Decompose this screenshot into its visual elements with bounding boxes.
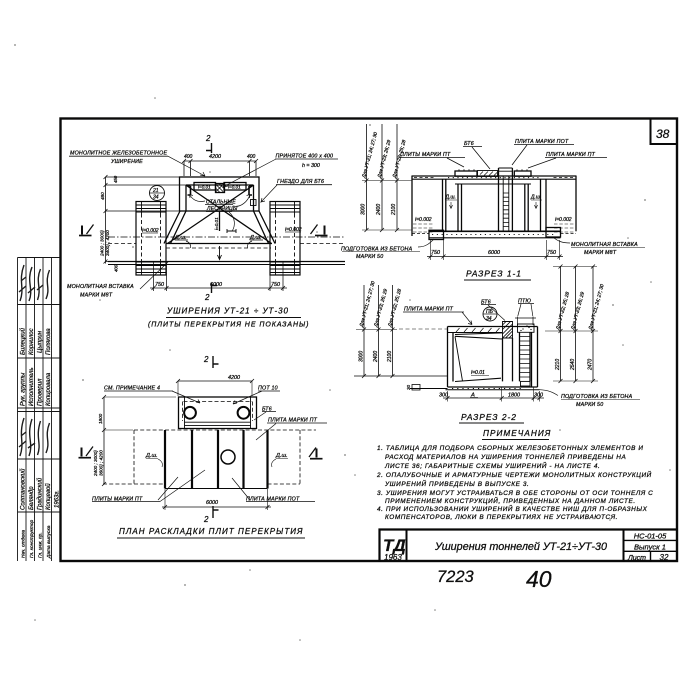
- svg-text:НС-01-05: НС-01-05: [634, 532, 667, 541]
- svg-text:ПРИМЕЧАНИЯ: ПРИМЕЧАНИЯ: [483, 429, 551, 438]
- svg-text:750: 750: [271, 282, 280, 288]
- svg-text:3600) ; 4200: 3600) ; 4200: [99, 450, 104, 476]
- svg-text:МАРКИ М8Т: МАРКИ М8Т: [80, 293, 113, 299]
- svg-text:750: 750: [547, 250, 556, 256]
- svg-text:Лист: Лист: [627, 555, 646, 562]
- svg-text:Гл. инж. пр.: Гл. инж. пр.: [38, 532, 44, 558]
- svg-text:Беляндр: Беляндр: [29, 486, 35, 510]
- svg-text:Дата выпуска: Дата выпуска: [46, 525, 52, 559]
- svg-text:300: 300: [439, 393, 448, 399]
- svg-text:34: 34: [486, 316, 492, 322]
- svg-text:УШИРЕНИЕ: УШИРЕНИЕ: [111, 159, 143, 165]
- svg-text:РАЗРЕЗ 2-2: РАЗРЕЗ 2-2: [461, 412, 517, 422]
- svg-text:21: 21: [152, 188, 159, 194]
- svg-text:Д.ш.: Д.ш.: [445, 195, 456, 201]
- svg-text:РАСХОД МАТЕРИАЛОВ НА УШИРЕН: РАСХОД МАТЕРИАЛОВ НА УШИРЕНИЯ ТОННЕЛЕЙ П…: [385, 452, 626, 461]
- svg-text:Цыприн: Цыприн: [38, 330, 44, 353]
- svg-text:l=0.01: l=0.01: [198, 185, 211, 190]
- svg-text:34: 34: [153, 195, 159, 201]
- svg-text:ПБ: ПБ: [486, 309, 494, 315]
- svg-text:2400: 2400: [373, 351, 379, 363]
- svg-text:6000: 6000: [206, 500, 218, 506]
- svg-text:ЛЕСТНИЦЫ: ЛЕСТНИЦЫ: [206, 206, 238, 212]
- svg-text:МОНОЛИТНАЯ ВСТАВКА: МОНОЛИТНАЯ ВСТАВКА: [571, 242, 638, 248]
- svg-text:2400 ; 3000): 2400 ; 3000): [100, 230, 105, 257]
- svg-text:ПОДГОТОВКА ИЗ БЕТОНА: ПОДГОТОВКА ИЗ БЕТОНА: [561, 394, 633, 400]
- svg-text:i=0.002: i=0.002: [415, 217, 432, 223]
- svg-text:ПЛИТА МАРКИ ПТ: ПЛИТА МАРКИ ПТ: [268, 418, 318, 424]
- svg-text:1963г.: 1963г.: [55, 490, 61, 508]
- svg-text:Д.ш.: Д.ш.: [530, 195, 541, 201]
- svg-text:2: 2: [205, 134, 211, 143]
- svg-text:ЛИСТЕ 36; ГАБАРИТНЫЕ СХЕМЫ: ЛИСТЕ 36; ГАБАРИТНЫЕ СХЕМЫ УШИРЕНИЙ - НА…: [384, 461, 600, 470]
- svg-text:30: 30: [406, 384, 411, 390]
- svg-text:УШИРЕНИЙ ПРИВЕДЕНЫ В ВЫПУСК: УШИРЕНИЙ ПРИВЕДЕНЫ В ВЫПУСКЕ 3.: [384, 479, 529, 488]
- svg-text:МАРКИ 50: МАРКИ 50: [356, 254, 383, 260]
- svg-text:2400 ; 3000): 2400 ; 3000): [93, 450, 98, 477]
- svg-text:6000: 6000: [488, 250, 500, 256]
- svg-text:МОНОЛИТНАЯ ВСТАВКА: МОНОЛИТНАЯ ВСТАВКА: [67, 284, 134, 290]
- svg-text:h = 300: h = 300: [302, 163, 320, 169]
- svg-text:l=0.01: l=0.01: [471, 370, 485, 376]
- svg-text:Копцевой: Копцевой: [45, 483, 52, 510]
- svg-text:Билецкий: Билецкий: [20, 327, 27, 355]
- svg-text:МОНОЛИТНОЕ ЖЕЛЕЗОБЕТОННОЕ: МОНОЛИТНОЕ ЖЕЛЕЗОБЕТОННОЕ: [70, 151, 167, 157]
- svg-text:Рук. группы: Рук. группы: [21, 372, 27, 406]
- svg-text:i=0.01: i=0.01: [214, 217, 219, 230]
- svg-text:400: 400: [114, 264, 119, 272]
- svg-text:ПОТ 10: ПОТ 10: [258, 386, 278, 392]
- svg-text:2400: 2400: [376, 204, 382, 216]
- svg-text:4200: 4200: [209, 154, 221, 160]
- svg-text:ПЛИТА МАРКИ ПТ: ПЛИТА МАРКИ ПТ: [404, 307, 454, 313]
- svg-text:7223: 7223: [437, 568, 475, 586]
- svg-text:Гл. конструктор: Гл. конструктор: [29, 519, 35, 558]
- svg-text:Д.ш.: Д.ш.: [275, 453, 288, 459]
- svg-text:300: 300: [534, 393, 543, 399]
- svg-text:ПРИМЕНЕНИЕМ КОНСТРУКЦИЙ, ПРИ: ПРИМЕНЕНИЕМ КОНСТРУКЦИЙ, ПРИВЕДЕННЫХ НА …: [385, 496, 636, 505]
- svg-text:480: 480: [100, 192, 105, 200]
- svg-text:Солтановский: Солтановский: [20, 468, 27, 510]
- svg-text:2: 2: [204, 293, 210, 302]
- svg-text:32: 32: [660, 553, 669, 562]
- svg-text:СМ. ПРИМЕЧАНИЕ 4: СМ. ПРИМЕЧАНИЕ 4: [104, 386, 160, 392]
- svg-text:3. УШИРЕНИЯ МОГУТ УСТРАИВАТЬ: 3. УШИРЕНИЯ МОГУТ УСТРАИВАТЬСЯ В ОБЕ СТО…: [377, 490, 653, 497]
- svg-text:4200: 4200: [228, 375, 240, 381]
- svg-text:МАРКИ 50: МАРКИ 50: [576, 402, 603, 408]
- svg-text:450: 450: [113, 175, 118, 183]
- svg-text:Исполнитель: Исполнитель: [29, 368, 35, 407]
- svg-text:1. ТАБЛИЦА ДЛЯ ПОДБОРА СБОР: 1. ТАБЛИЦА ДЛЯ ПОДБОРА СБОРНЫХ ЖЕЛЕЗОБЕТ…: [377, 445, 644, 452]
- svg-text:ПЛАН РАСКЛАДКИ ПЛИТ ПЕРЕКРЫ: ПЛАН РАСКЛАДКИ ПЛИТ ПЕРЕКРЫТИЯ: [119, 527, 304, 536]
- svg-text:2540: 2540: [570, 359, 576, 371]
- svg-text:Проверил: Проверил: [38, 378, 44, 406]
- svg-text:l=0.01: l=0.01: [228, 185, 241, 190]
- svg-text:1800: 1800: [98, 413, 103, 424]
- svg-text:Полякова: Полякова: [46, 328, 52, 355]
- svg-text:2: 2: [203, 355, 209, 364]
- svg-text:Уширения тоннелей УТ-21÷УТ-3: Уширения тоннелей УТ-21÷УТ-30: [434, 541, 607, 553]
- svg-text:38: 38: [656, 127, 670, 141]
- svg-text:Градинский: Градинский: [37, 477, 44, 510]
- svg-text:Выпуск 1: Выпуск 1: [634, 543, 666, 552]
- svg-text:(ПЛИТЫ ПЕРЕКРЫТИЯ НЕ ПОКАЗА: (ПЛИТЫ ПЕРЕКРЫТИЯ НЕ ПОКАЗАНЫ): [148, 322, 309, 329]
- svg-text:750: 750: [155, 282, 164, 288]
- svg-text:2210: 2210: [555, 359, 561, 371]
- svg-text:2470: 2470: [588, 359, 594, 371]
- svg-text:3400) ; 4200: 3400) ; 4200: [105, 230, 110, 256]
- svg-text:УШИРЕНИЯ УТ-21 ÷ УТ-30: УШИРЕНИЯ УТ-21 ÷ УТ-30: [166, 307, 289, 316]
- svg-text:1800: 1800: [508, 393, 520, 399]
- svg-text:2: 2: [203, 515, 209, 524]
- svg-text:40: 40: [526, 566, 552, 592]
- svg-text:2100: 2100: [387, 351, 393, 363]
- svg-text:КОМПЕНСАТОРОВ, ЛЮКИ В ПЕРЕК: КОМПЕНСАТОРОВ, ЛЮКИ В ПЕРЕКРЫТИЯХ НЕ УСТ…: [385, 514, 618, 521]
- svg-text:МАРКИ М8Т: МАРКИ М8Т: [584, 250, 617, 256]
- svg-text:i=0.002: i=0.002: [555, 217, 572, 223]
- svg-text:400: 400: [247, 154, 256, 160]
- svg-text:РАЗРЕЗ 1-1: РАЗРЕЗ 1-1: [466, 269, 522, 279]
- svg-text:2100: 2100: [391, 204, 397, 216]
- svg-text:4. ПРИ ИСПОЛЬЗОВАНИИ УШИРЕНИ: 4. ПРИ ИСПОЛЬЗОВАНИИ УШИРЕНИЙ В КАЧЕСТВЕ…: [377, 504, 648, 513]
- svg-text:Корнилос: Корнилос: [29, 328, 35, 355]
- svg-text:Д.ш.: Д.ш.: [145, 453, 158, 459]
- svg-text:3000: 3000: [361, 204, 367, 215]
- svg-text:750: 750: [431, 250, 440, 256]
- svg-text:1963: 1963: [384, 553, 402, 562]
- svg-text:2. ОПАЛУБОЧНЫЕ И АРМАТУРНЫЕ: 2. ОПАЛУБОЧНЫЕ И АРМАТУРНЫЕ ЧЕРТЕЖИ МОНО…: [376, 470, 652, 479]
- svg-text:400: 400: [184, 154, 193, 160]
- svg-text:Нач. отдела: Нач. отдела: [21, 530, 27, 558]
- svg-text:3000: 3000: [359, 351, 365, 362]
- svg-text:Копировала: Копировала: [46, 372, 52, 406]
